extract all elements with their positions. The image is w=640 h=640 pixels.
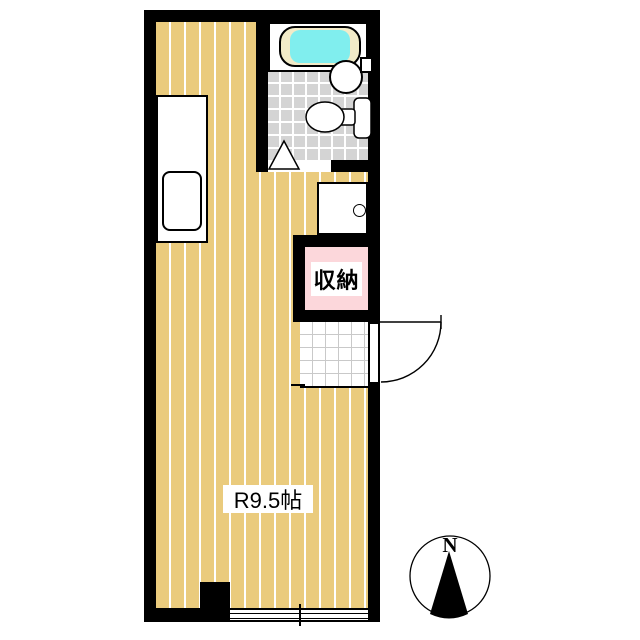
compass-north-label: N <box>436 533 464 557</box>
window-center-mark <box>299 604 301 626</box>
pillar <box>200 582 230 608</box>
entry-door-leaf <box>368 322 380 384</box>
wall-bottom-right-corner <box>368 608 380 622</box>
vanity-knob-icon <box>353 204 366 217</box>
bathroom-doorway <box>268 160 331 172</box>
entry-step-mark <box>291 384 305 386</box>
wash-basin-icon <box>329 60 363 94</box>
kitchen-sink <box>162 171 202 231</box>
wall-bottom-left <box>144 608 230 622</box>
bathroom-bottom-wall <box>331 160 368 172</box>
bathtub-icon <box>290 30 350 63</box>
entry-door-swing-icon <box>380 315 441 382</box>
storage-closet: 収納 <box>305 247 368 310</box>
room-size-label: R9.5帖 <box>223 485 313 513</box>
bathroom-partition-wall <box>256 10 268 172</box>
faucet-icon <box>360 57 373 73</box>
wall-left <box>144 10 156 622</box>
wall-top <box>144 10 380 22</box>
entryway-tile <box>300 322 368 388</box>
closet-label: 収納 <box>311 262 361 296</box>
floor-plan: 収納 R9.5帖 <box>144 10 380 622</box>
floor-plan-page: 収納 R9.5帖 <box>0 0 640 640</box>
wall-right-lower <box>368 384 380 622</box>
